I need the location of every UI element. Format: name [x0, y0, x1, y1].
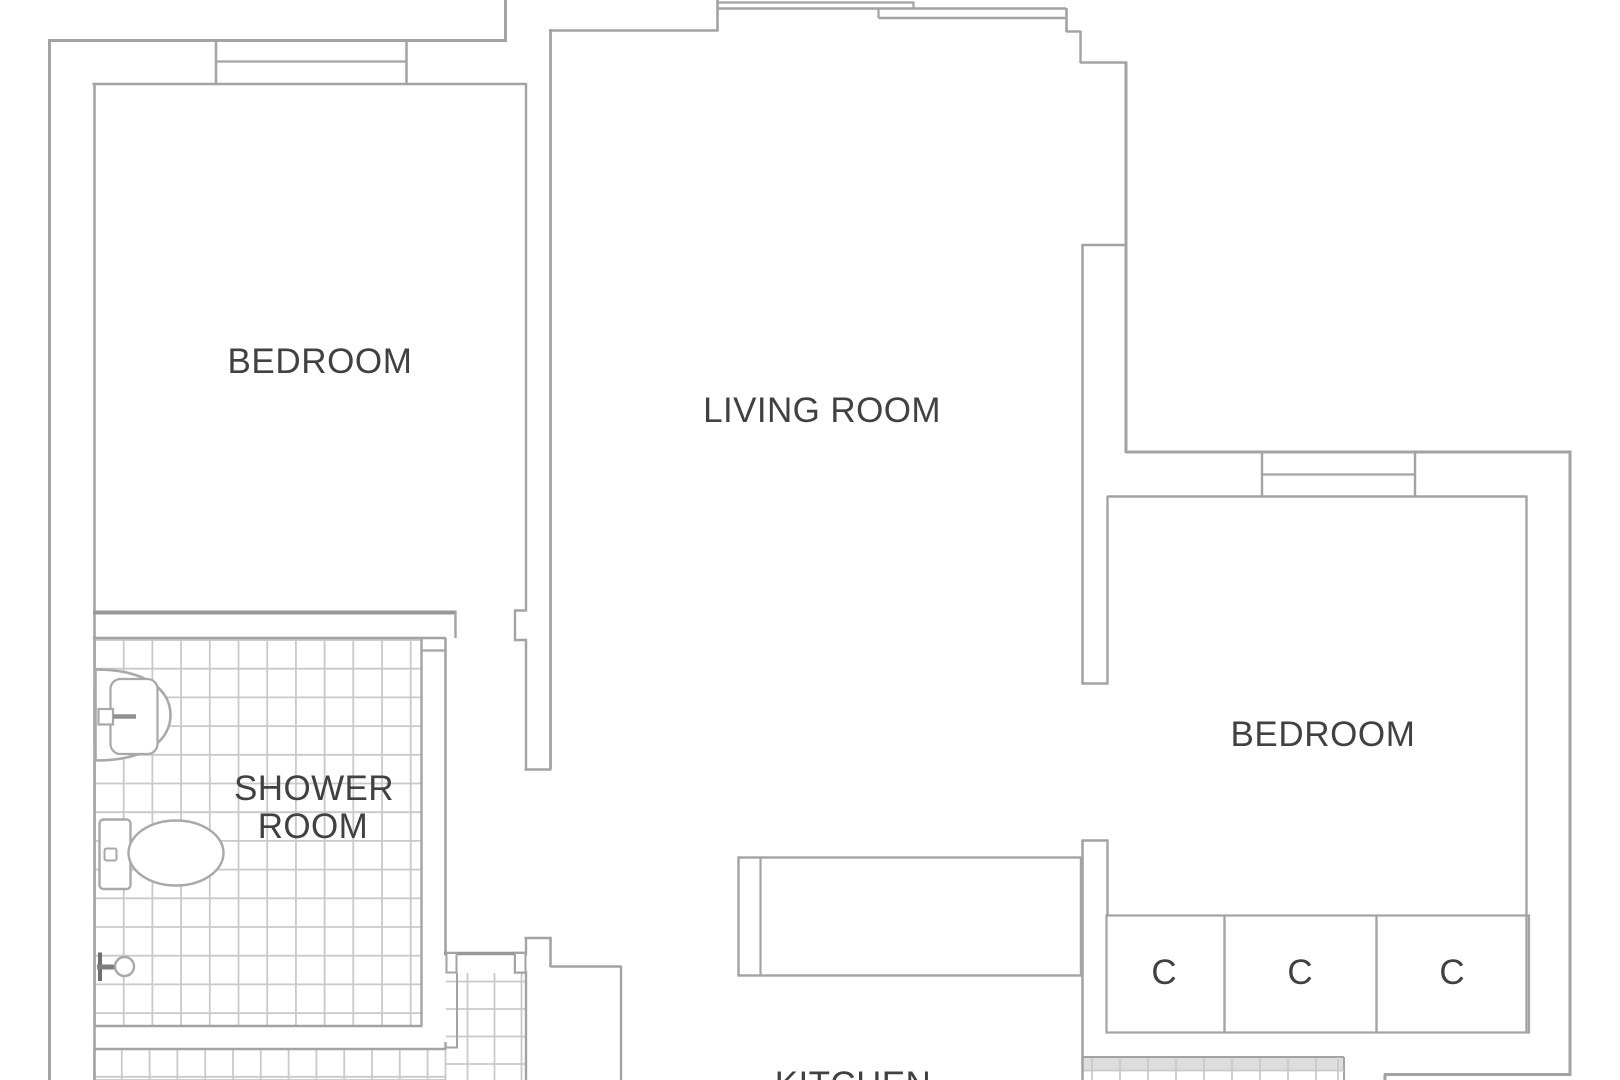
- svg-text:C: C: [1439, 953, 1464, 992]
- svg-text:BEDROOM: BEDROOM: [1230, 715, 1415, 754]
- svg-text:ROOM: ROOM: [258, 807, 368, 846]
- svg-text:LIVING ROOM: LIVING ROOM: [703, 391, 941, 430]
- svg-text:C: C: [1151, 953, 1176, 992]
- svg-text:KITCHEN: KITCHEN: [775, 1065, 931, 1080]
- svg-text:BEDROOM: BEDROOM: [227, 342, 412, 381]
- svg-text:SHOWER: SHOWER: [234, 769, 394, 808]
- svg-text:C: C: [1287, 953, 1312, 992]
